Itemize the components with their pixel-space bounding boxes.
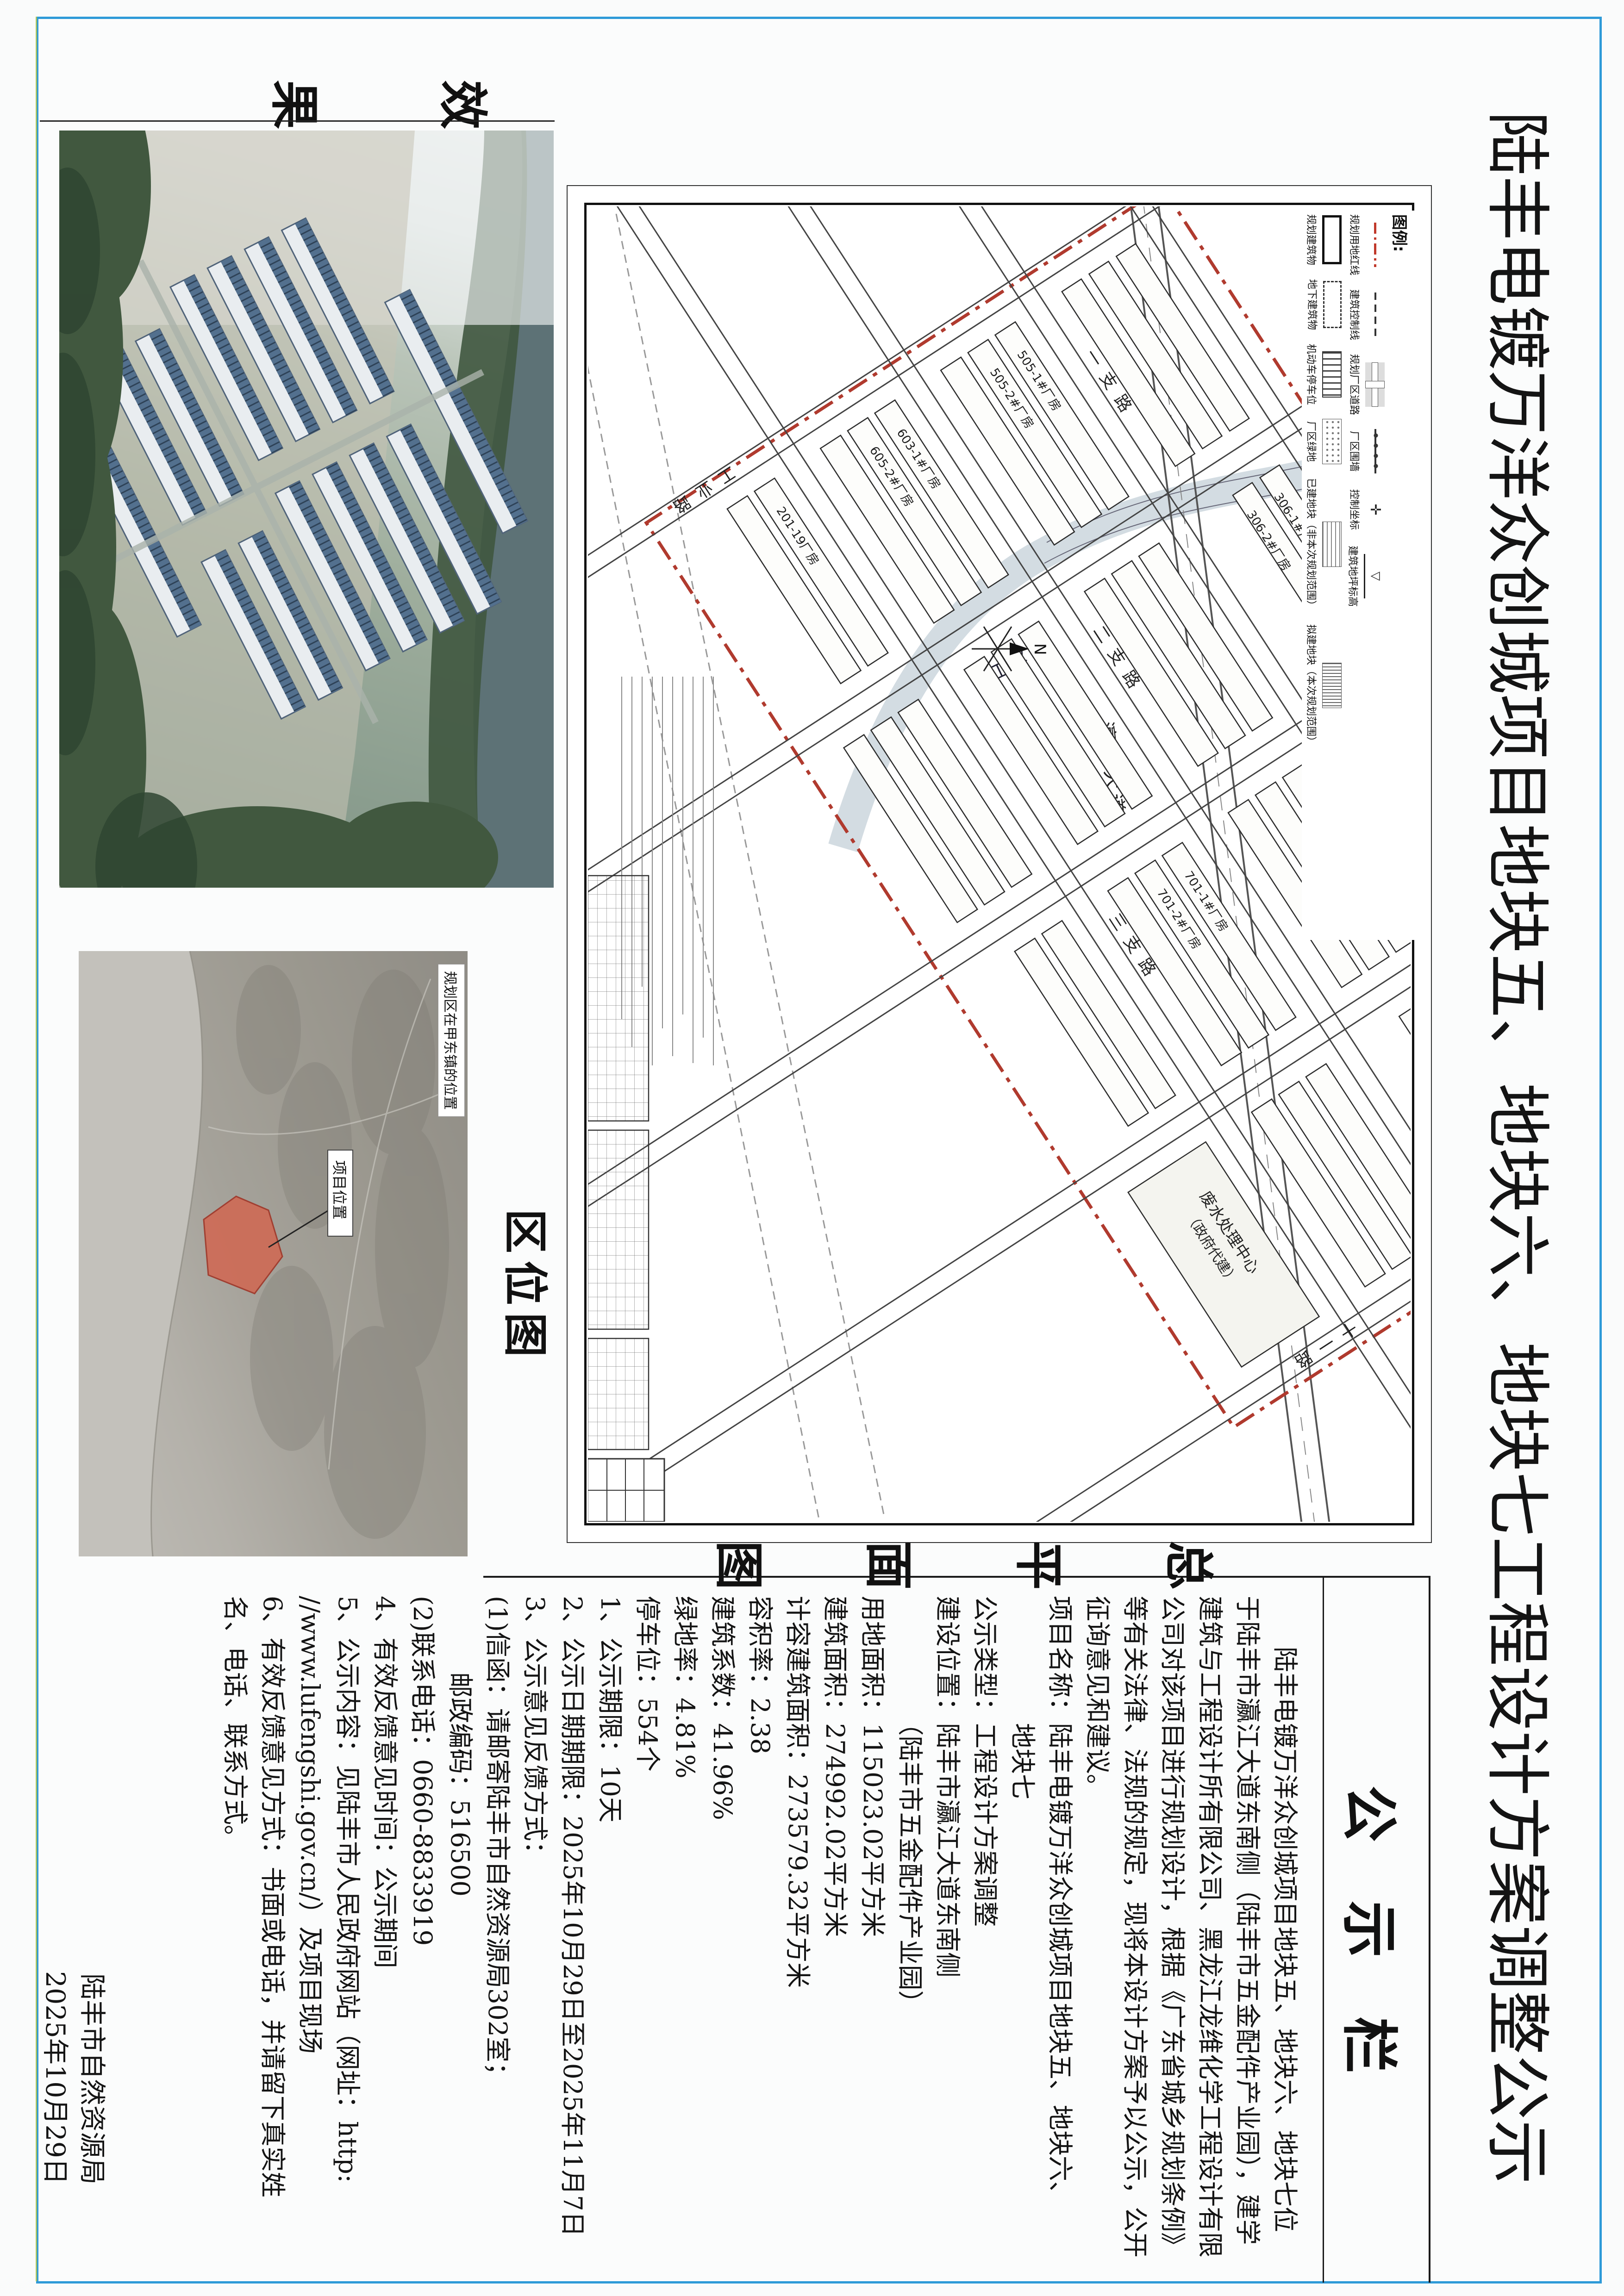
notice-line: 6、有效反馈意见方式：书面或电话，并请留下真实姓 <box>254 1596 291 2276</box>
legend-label: 厂区绿地 <box>1305 421 1319 462</box>
legend-label: 规划用地红线 <box>1348 214 1362 275</box>
notice-line: 2、公示日期期限：2025年10月29日至2025年11月7日 <box>554 1596 591 2276</box>
legend-swatch-greenland-icon <box>1322 419 1342 464</box>
sea-area <box>79 951 202 1556</box>
legend-label: 已建地块（非本次规划范围） <box>1305 478 1319 610</box>
legend-label: 规划建筑物 <box>1305 214 1319 265</box>
legend-label: 地下建筑物 <box>1305 279 1320 330</box>
notice-line: 名、电话、联系方式。 <box>216 1596 254 2276</box>
notice-header: 公示栏 <box>1333 1576 1415 2283</box>
legend-row-2: 规划建筑物 地下建筑物 机动车停车位 厂区绿地 已建地块（非本次规划范围） 拟建… <box>1305 214 1342 936</box>
notice-header-rule <box>1323 1576 1324 2283</box>
notice-line: 5、公示内容：见陆丰市人民政府网站（网址：http: <box>329 1596 366 2276</box>
notice-line: 地块七 <box>1004 1596 1041 2276</box>
notice-line: 停车位：554个 <box>629 1596 666 2276</box>
road-label-5: 工业路 <box>661 462 739 522</box>
legend-label: 建筑控制线 <box>1348 289 1362 340</box>
notice-line: 于陆丰市瀛江大道东南侧（陆丰市五金配件产业园），建学 <box>1229 1596 1266 2276</box>
notice-line: 邮政编码：516500 <box>441 1596 479 2276</box>
legend-swatch-road-icon <box>1365 362 1385 407</box>
notice-line: 3、公示意见反馈方式： <box>516 1596 554 2276</box>
notice-line: 等有关法律、法规的规定，现将本设计方案予以公示，公开 <box>1116 1596 1154 2276</box>
location-note: 规划区在甲东镇的位置 <box>438 964 465 1117</box>
marker-text: 项目位置 <box>331 1160 348 1220</box>
notice-body: 陆丰电镀万洋众创城项目地块五、地块六、地块七位 于陆丰市瀛江大道东南侧（陆丰市五… <box>37 1596 1304 2276</box>
notice-line: (1)信函：请邮寄陆丰市自然资源局302室； <box>479 1596 516 2276</box>
north-label: N <box>1031 643 1049 655</box>
signature-block: 陆丰市自然资源局 2025年10月29日 <box>37 1596 111 2276</box>
notice-line: 容积率：2.38 <box>741 1596 779 2276</box>
notice-line: 公示类型：工程设计方案调整 <box>966 1596 1004 2276</box>
notice-line: 绿地率：4.81% <box>666 1596 704 2276</box>
notice-line: //www.lufengshi.gov.cn/）及项目现场 <box>291 1596 329 2276</box>
landscape-document: 陆丰电镀万洋众创城项目地块五、地块六、地块七工程设计方案调整公示 <box>0 0 1624 2296</box>
project-location-label: 项目位置 <box>328 1150 353 1236</box>
signature-date: 2025年10月29日 <box>37 1596 74 2184</box>
legend-label: 拟建地块（本次规划范围） <box>1305 624 1319 747</box>
signature-org: 陆丰市自然资源局 <box>74 1596 111 2184</box>
notice-line: 陆丰电镀万洋众创城项目地块五、地块六、地块七位 <box>1266 1596 1304 2276</box>
notice-line: 4、有效反馈意见时间：公示期间 <box>366 1596 404 2276</box>
indicator-tables <box>587 876 664 1522</box>
notice-line: 用地面积：115023.02平方米 <box>854 1596 891 2276</box>
notice-line: 1、公示期限：10天 <box>591 1596 629 2276</box>
notice-line: 征询意见和建议。 <box>1079 1596 1116 2276</box>
legend-label: 控制坐标 <box>1348 489 1362 530</box>
caption-site-plan: 总平面图 <box>615 1525 1215 1597</box>
legend-title: 图例: <box>1390 214 1408 252</box>
legend-label: 建筑地坪标高 <box>1346 546 1361 607</box>
legend-swatch-parking-icon <box>1322 351 1342 398</box>
notice-line: (2)联系电话：0660-8833919 <box>404 1596 441 2276</box>
plan-legend: 图例: 规划用地红线 建筑控制线 规划厂区道路 厂区围墙 ✛控制坐标 ▽建筑地坪… <box>1302 211 1415 940</box>
notice-line: 建筑面积：274992.02平方米 <box>816 1596 854 2276</box>
caption-location-map: 区位图 <box>497 1209 561 1364</box>
notice-line: （陆丰市五金配件产业园） <box>891 1596 929 2276</box>
legend-swatch-controlline-icon <box>1374 292 1376 337</box>
rendering-image <box>59 131 554 888</box>
rendering-separator-line <box>40 120 555 122</box>
document-title: 陆丰电镀万洋众创城项目地块五、地块六、地块七工程设计方案调整公示 <box>1476 42 1569 2254</box>
notice-line: 建筑与工程设计所有限公司、黑龙江龙维化学工程设计有限 <box>1191 1596 1229 2276</box>
notice-line: 公司对该项目进行规划设计，根据《广东省城乡规划条例》 <box>1154 1596 1191 2276</box>
legend-swatch-built-icon <box>1322 522 1342 567</box>
legend-swatch-coordinate-icon: ✛ <box>1365 487 1385 532</box>
legend-row-1: 规划用地红线 建筑控制线 规划厂区道路 厂区围墙 ✛控制坐标 ▽建筑地坪标高 <box>1346 214 1385 936</box>
legend-swatch-proposed-icon <box>1322 663 1342 708</box>
notice-line: 项目名称：陆丰电镀万洋众创城项目地块五、地块六、 <box>1041 1596 1079 2276</box>
legend-swatch-wall-icon <box>1374 429 1376 473</box>
notice-line: 建筑系数：41.96% <box>704 1596 741 2276</box>
location-map-image: 项目位置 规划区在甲东镇的位置 <box>79 951 468 1556</box>
legend-swatch-building-icon <box>1322 215 1342 264</box>
notice-line: 计容建筑面积：273579.32平方米 <box>779 1596 816 2276</box>
legend-swatch-level-icon: ▽ <box>1364 554 1385 598</box>
scanned-page: 陆丰电镀万洋众创城项目地块五、地块六、地块七工程设计方案调整公示 <box>0 0 1624 2296</box>
legend-label: 机动车停车位 <box>1305 344 1319 405</box>
legend-swatch-redline-icon <box>1374 223 1376 267</box>
notice-line: 建设位置：陆丰市瀛江大道东南侧 <box>929 1596 966 2276</box>
legend-label: 规划厂区道路 <box>1348 354 1362 415</box>
legend-swatch-underground-icon <box>1323 281 1342 328</box>
notice-box-top-border <box>1429 1576 1430 2283</box>
legend-label: 厂区围墙 <box>1348 431 1362 472</box>
